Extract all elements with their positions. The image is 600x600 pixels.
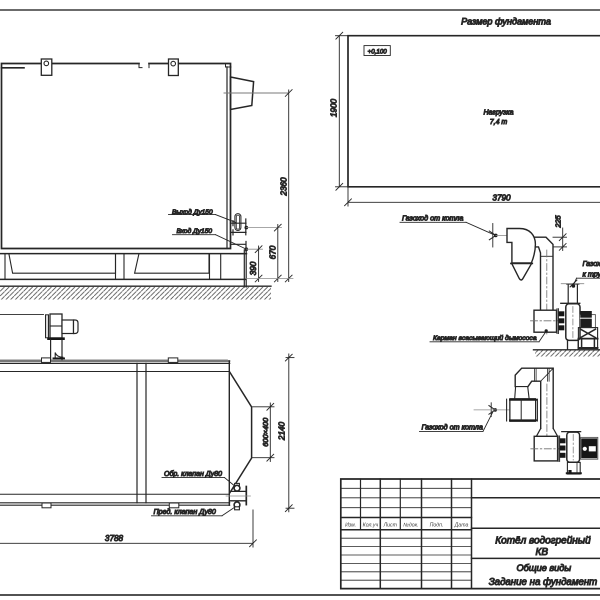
svg-text:600×400: 600×400 xyxy=(261,417,270,447)
svg-text:3788: 3788 xyxy=(105,534,124,543)
svg-text:№док.: №док. xyxy=(403,522,418,528)
svg-text:Общие виды: Общие виды xyxy=(516,563,571,573)
svg-text:Пред. клапан Ду80: Пред. клапан Ду80 xyxy=(154,508,216,516)
svg-text:1900: 1900 xyxy=(330,98,339,117)
svg-text:Вход Ду150: Вход Ду150 xyxy=(177,227,213,235)
svg-text:Изм.: Изм. xyxy=(345,522,356,528)
svg-text:Кол.уч: Кол.уч xyxy=(363,522,379,528)
svg-text:2360: 2360 xyxy=(279,177,288,197)
svg-text:КВ: КВ xyxy=(536,547,549,558)
svg-text:Задание на фундамент: Задание на фундамент xyxy=(489,577,598,588)
svg-text:3790: 3790 xyxy=(492,193,511,202)
svg-text:+0,100: +0,100 xyxy=(368,49,388,56)
svg-text:Лист: Лист xyxy=(383,522,398,528)
svg-text:Подп.: Подп. xyxy=(430,522,444,528)
svg-text:Обр. клапан Ду80: Обр. клапан Ду80 xyxy=(164,470,222,478)
svg-text:670: 670 xyxy=(268,245,277,259)
svg-text:Нагрузка: Нагрузка xyxy=(483,110,513,117)
svg-text:Газоход: Газоход xyxy=(583,259,600,268)
svg-text:к трубе: к трубе xyxy=(583,270,600,279)
svg-text:Газоход от котла: Газоход от котла xyxy=(422,423,483,432)
svg-text:Размер фундамента: Размер фундамента xyxy=(461,17,551,27)
svg-text:Карман всасывающий дымососа: Карман всасывающий дымососа xyxy=(433,334,537,342)
svg-text:Дата: Дата xyxy=(454,522,469,528)
svg-text:Газоход от котла: Газоход от котла xyxy=(402,214,463,223)
svg-text:225: 225 xyxy=(554,214,563,228)
svg-text:7,4 т: 7,4 т xyxy=(490,119,508,126)
svg-text:Котёл водогрейный: Котёл водогрейный xyxy=(495,536,591,547)
svg-text:2140: 2140 xyxy=(277,421,286,441)
svg-text:390: 390 xyxy=(249,261,258,275)
